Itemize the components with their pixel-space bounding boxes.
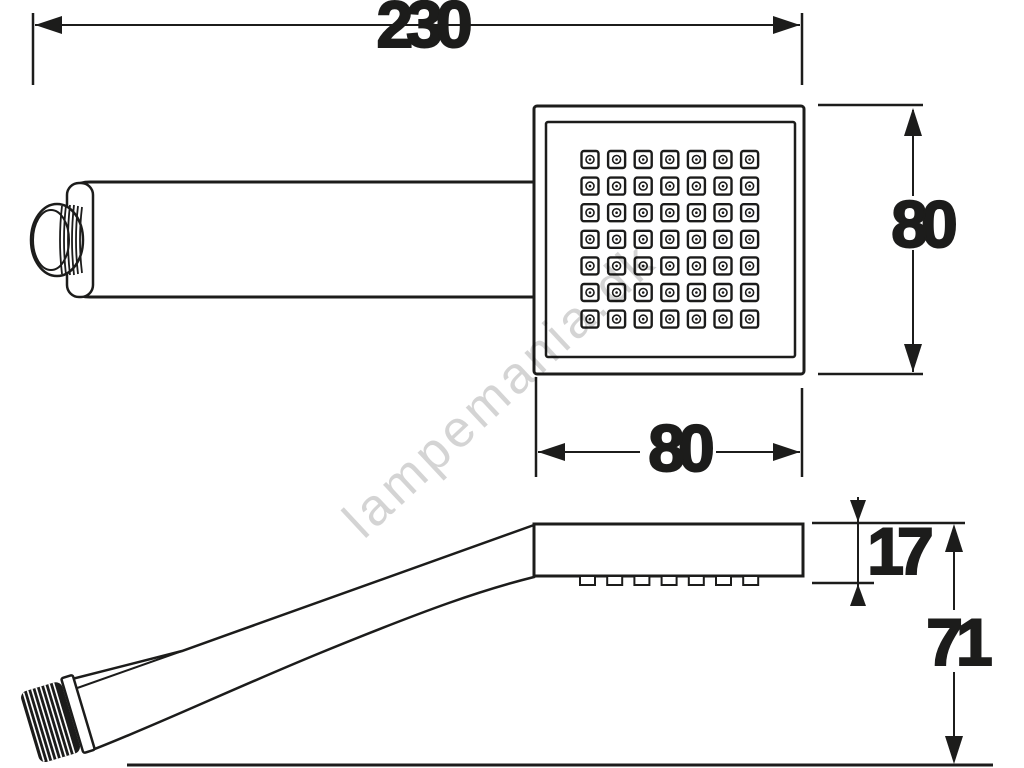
nozzle-outlet-side <box>743 576 758 585</box>
nozzle-dot <box>722 265 725 268</box>
nozzle-dot <box>642 211 645 214</box>
nozzle-dot <box>748 185 751 188</box>
nozzle-outlet-side <box>689 576 704 585</box>
dim-label-80-width: 80 <box>648 411 712 485</box>
nozzle-dot <box>642 158 645 161</box>
nozzle-outlet-side <box>662 576 677 585</box>
dim-label-80-height: 80 <box>891 187 955 261</box>
nozzle-dot <box>722 158 725 161</box>
nozzle-dot <box>589 318 592 321</box>
top-view <box>31 106 804 374</box>
nozzle-dot <box>642 265 645 268</box>
nozzle-outlet-side <box>607 576 622 585</box>
nozzle-dot <box>669 211 672 214</box>
nozzle-dot <box>669 318 672 321</box>
nozzle-dot <box>615 291 618 294</box>
nozzle-dot <box>722 291 725 294</box>
nozzle-grid <box>582 151 759 328</box>
nozzle-dot <box>642 185 645 188</box>
nozzle-dot <box>615 238 618 241</box>
nozzle-outlet-side <box>716 576 731 585</box>
dimension-total-length: 230 <box>33 0 802 85</box>
nozzle-dot <box>695 211 698 214</box>
nozzle-outlet-side <box>634 576 649 585</box>
nozzle-row-side <box>580 576 758 585</box>
nozzle-dot <box>748 265 751 268</box>
nozzle-dot <box>615 318 618 321</box>
nozzle-dot <box>748 211 751 214</box>
nozzle-dot <box>695 291 698 294</box>
nozzle-dot <box>669 291 672 294</box>
nozzle-dot <box>695 158 698 161</box>
nozzle-dot <box>615 158 618 161</box>
handle-top-view <box>70 182 534 297</box>
nozzle-dot <box>589 238 592 241</box>
dim-label-17: 17 <box>867 514 931 588</box>
nozzle-dot <box>589 291 592 294</box>
dimension-head-height: 80 <box>818 105 955 374</box>
handle-side-view <box>64 525 534 752</box>
nozzle-dot <box>748 158 751 161</box>
nozzle-dot <box>722 211 725 214</box>
nozzle-dot <box>722 318 725 321</box>
head-side-view <box>534 524 803 576</box>
nozzle-dot <box>722 238 725 241</box>
nozzle-dot <box>589 211 592 214</box>
nozzle-dot <box>748 238 751 241</box>
nozzle-dot <box>669 265 672 268</box>
nozzle-dot <box>669 185 672 188</box>
nozzle-dot <box>642 318 645 321</box>
drawing-canvas: 230 80 80 <box>0 0 1024 768</box>
technical-drawing-page: 230 80 80 <box>0 0 1024 768</box>
nozzle-dot <box>589 265 592 268</box>
nozzle-dot <box>642 291 645 294</box>
dim-label-71: 71 <box>926 605 991 679</box>
dimension-head-thickness: 17 <box>812 497 965 606</box>
side-view <box>19 524 993 765</box>
nozzle-dot <box>722 185 725 188</box>
nozzle-dot <box>642 238 645 241</box>
nozzle-dot <box>615 265 618 268</box>
nozzle-outlet-side <box>580 576 595 585</box>
nozzle-dot <box>615 211 618 214</box>
nozzle-dot <box>695 238 698 241</box>
nozzle-dot <box>748 318 751 321</box>
dim-label-230: 230 <box>376 0 469 61</box>
nozzle-dot <box>589 158 592 161</box>
nozzle-dot <box>695 185 698 188</box>
nozzle-dot <box>695 265 698 268</box>
thread-top-view <box>31 204 83 276</box>
nozzle-dot <box>669 158 672 161</box>
nozzle-dot <box>695 318 698 321</box>
dimension-head-width: 80 <box>536 377 802 485</box>
dimension-end-height: 71 <box>926 524 991 764</box>
nozzle-dot <box>748 291 751 294</box>
nozzle-dot <box>669 238 672 241</box>
nozzle-dot <box>615 185 618 188</box>
nozzle-dot <box>589 185 592 188</box>
